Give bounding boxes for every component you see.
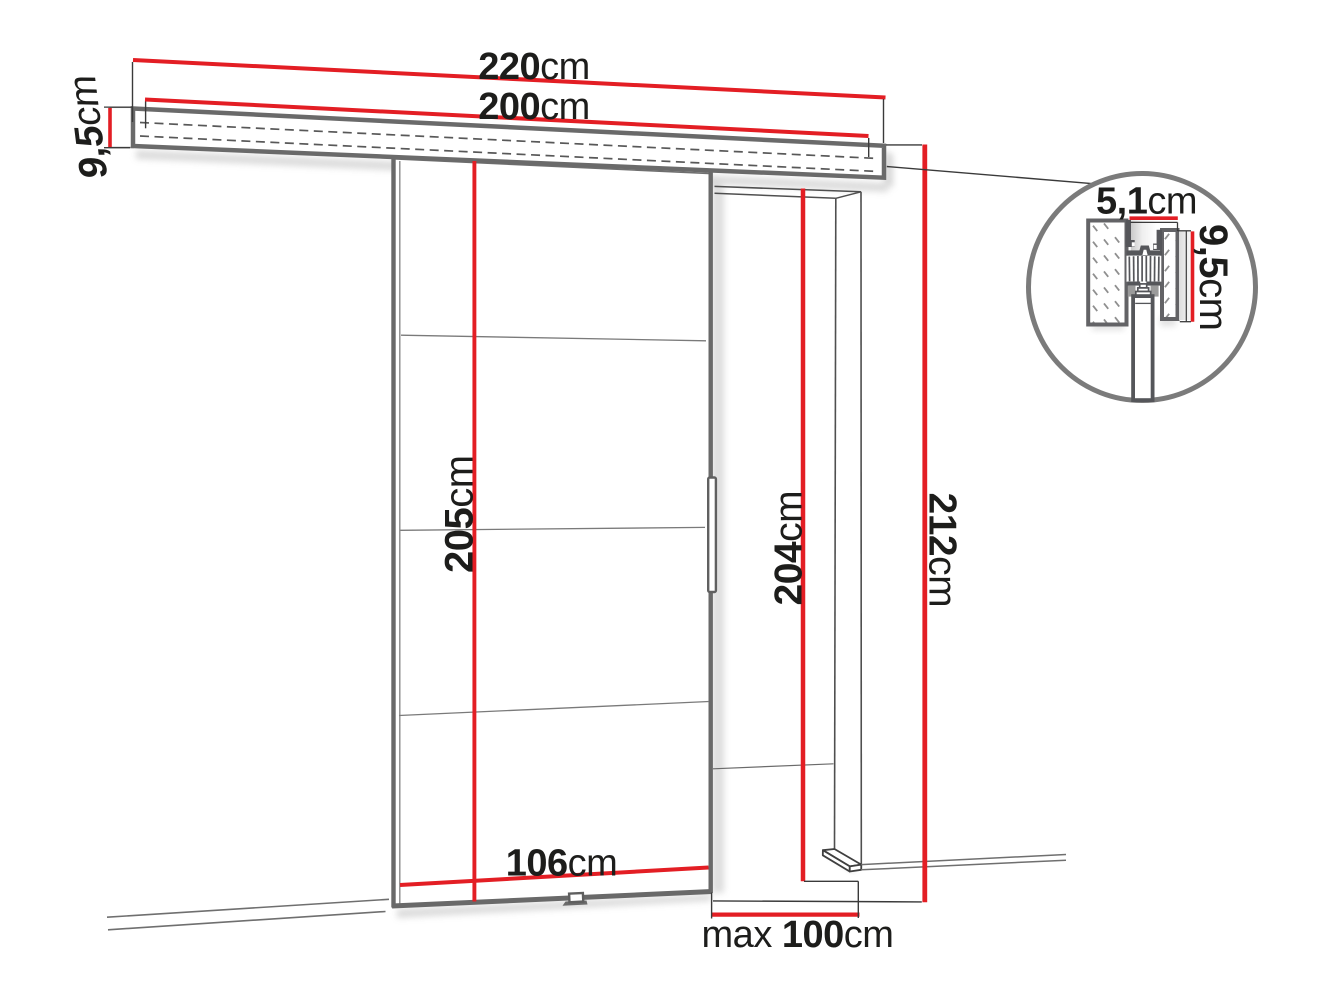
svg-text:106cm: 106cm: [506, 843, 618, 885]
svg-text:max 100cm: max 100cm: [702, 914, 894, 956]
svg-text:205cm: 205cm: [438, 455, 482, 573]
svg-text:200cm: 200cm: [478, 86, 590, 128]
svg-text:9,5cm: 9,5cm: [1191, 224, 1235, 330]
svg-text:5,1cm: 5,1cm: [1096, 181, 1197, 223]
svg-text:220cm: 220cm: [478, 46, 590, 88]
svg-text:204cm: 204cm: [768, 491, 811, 606]
svg-text:212cm: 212cm: [921, 493, 964, 608]
svg-text:9,5cm: 9,5cm: [61, 75, 117, 179]
